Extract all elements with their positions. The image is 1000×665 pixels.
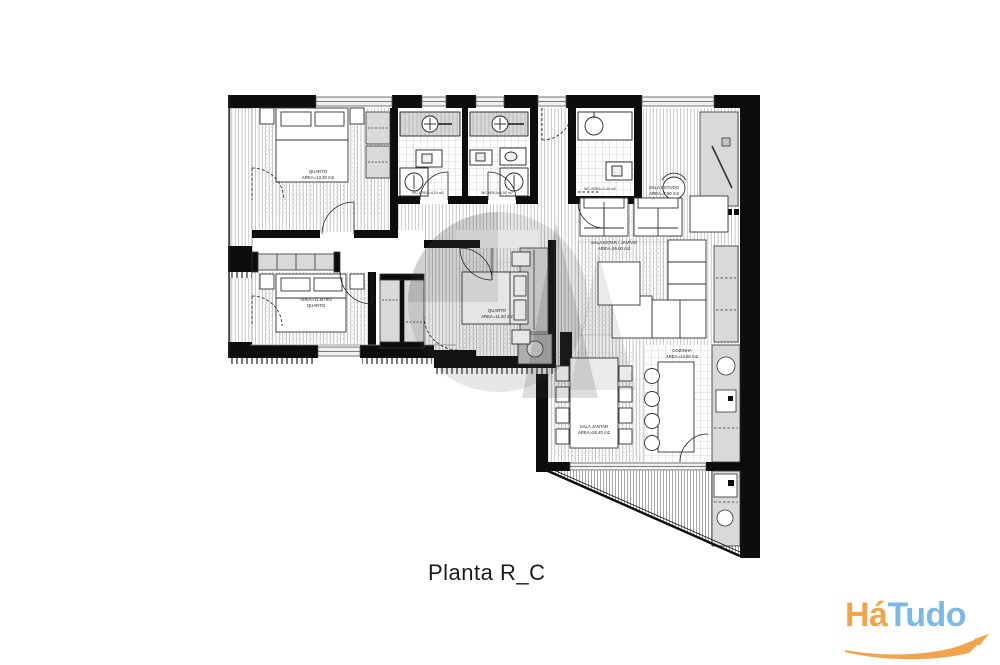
- loveseat-2: [634, 198, 682, 236]
- living-tv-cabinet: [714, 246, 738, 342]
- label-quarto2-area: AREA=11.60 m2: [300, 297, 332, 302]
- label-cozinha-area: AREA=13.60 m2: [666, 354, 699, 359]
- plan-caption: Planta R_C: [428, 560, 546, 586]
- nightstand: [350, 108, 364, 124]
- hatudo-logo: HáTudo: [845, 598, 995, 660]
- label-quarto1-area: AREA=13.20 m2: [302, 175, 335, 180]
- label-estudo-area: AREA=7.50 m2: [649, 191, 679, 196]
- nightstand: [260, 108, 274, 124]
- label-jantar-name: SALA JANTAR: [580, 424, 608, 429]
- kitchen-counter: [712, 345, 740, 462]
- stool: [645, 392, 660, 407]
- logo-text-ha: Há: [845, 596, 887, 634]
- nightstand: [350, 274, 364, 289]
- label-wc2: WC AREA=4.50 m2: [481, 191, 513, 195]
- study-desk: [700, 112, 738, 206]
- label-estar-name: SALA ESTAR / JANTAR: [591, 240, 637, 245]
- sink-3: [585, 117, 603, 135]
- stool: [645, 414, 660, 429]
- side-table: [690, 196, 728, 232]
- window-wc2: [476, 97, 504, 106]
- label-estudo-name: SALA ESTUDO: [649, 185, 680, 190]
- label-wc3: WC AREA=2.40 m2: [584, 187, 616, 191]
- label-wc1: WC AREA=4.10 m2: [412, 191, 444, 195]
- hall-wardrobe-strip: [252, 252, 340, 272]
- hatudo-logo-text: HáTudo: [845, 598, 995, 632]
- label-jantar-area: AREA=28.40 m2: [578, 430, 611, 435]
- kitchen-sink: [717, 357, 735, 375]
- window-bedroom1: [316, 97, 392, 106]
- balcony-left-floor: [230, 108, 252, 345]
- logo-swoosh-arrow-icon: [841, 633, 993, 661]
- terrace-cabinet: [712, 471, 740, 546]
- page: QUARTO AREA=13.20 m2 AREA=11.60 m2 QUART…: [0, 0, 1000, 665]
- stool: [645, 436, 660, 451]
- window-wc1: [422, 97, 446, 106]
- logo-text-tudo: Tudo: [887, 596, 966, 634]
- window-terrace: [570, 463, 706, 470]
- label-cozinha-name: COZINHA: [672, 348, 691, 353]
- label-quarto1-name: QUARTO: [309, 169, 328, 174]
- label-estar-area: AREA=26.00 m2: [598, 246, 631, 251]
- terrace-sink: [717, 510, 733, 526]
- window-bedroom2: [318, 347, 360, 356]
- window-hall: [538, 97, 566, 106]
- stool: [645, 369, 660, 384]
- window-study: [642, 97, 714, 106]
- label-quarto2-name: QUARTO: [307, 303, 326, 308]
- nightstand: [260, 274, 274, 289]
